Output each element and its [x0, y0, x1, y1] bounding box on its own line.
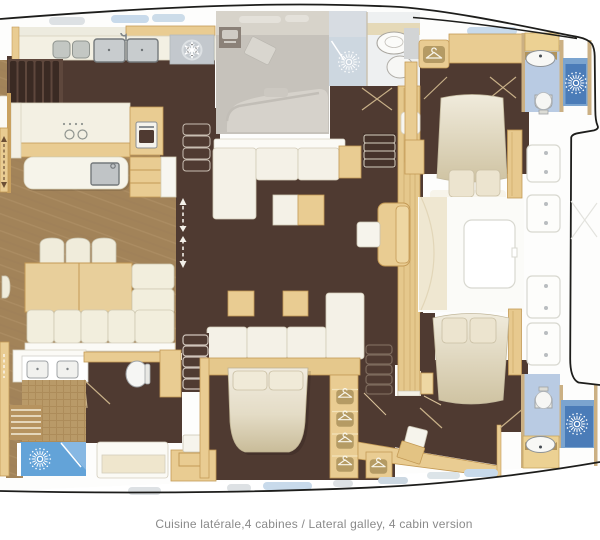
- svg-text:Cuisine latérale,4 cabines / L: Cuisine latérale,4 cabines / Lateral gal…: [155, 517, 472, 531]
